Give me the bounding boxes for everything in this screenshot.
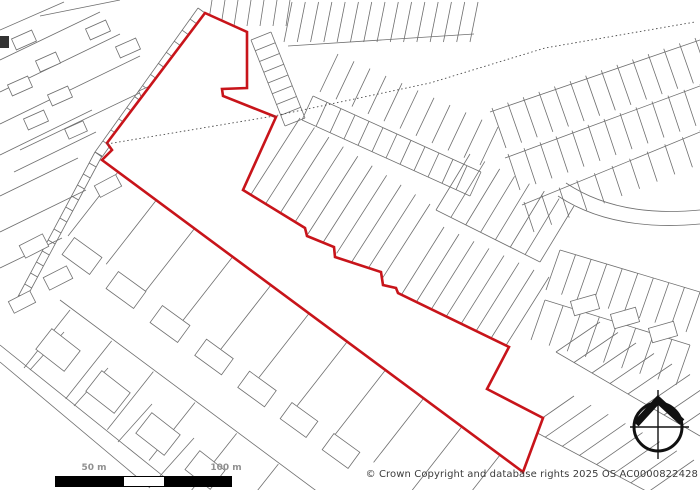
map-canvas bbox=[0, 0, 700, 490]
site-location-plan: 50 m 100 m © Crown Copyright and databas… bbox=[0, 0, 700, 490]
scale-bar-segment bbox=[123, 476, 165, 487]
scale-bar-segment bbox=[165, 476, 232, 487]
copyright-text: © Crown Copyright and database rights 20… bbox=[366, 469, 698, 480]
scale-bar-segment bbox=[55, 476, 123, 487]
scale-label-50m: 50 m bbox=[81, 463, 106, 473]
scale-bar bbox=[55, 476, 232, 487]
scale-label-100m: 100 m bbox=[210, 463, 241, 473]
